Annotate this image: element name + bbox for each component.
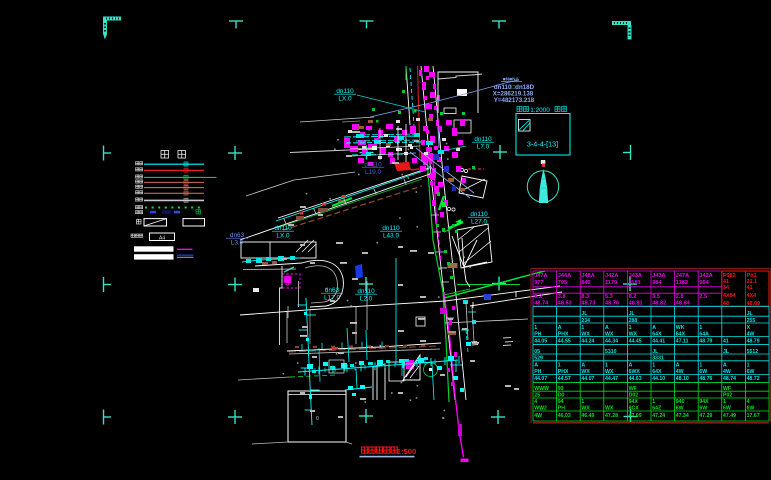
svg-text:48.76: 48.76 (605, 301, 619, 307)
svg-text:44.24: 44.24 (581, 338, 594, 344)
svg-text:6W: 6W (699, 369, 707, 375)
svg-text:2.5: 2.5 (699, 294, 707, 300)
svg-text:1181: 1181 (629, 280, 641, 286)
svg-text:LX.0: LX.0 (276, 233, 290, 240)
svg-text:5.3: 5.3 (605, 294, 613, 300)
svg-text:44.07: 44.07 (534, 376, 547, 382)
svg-text:48.81: 48.81 (629, 301, 643, 307)
svg-text:WX: WX (605, 331, 614, 337)
svg-text:1: 1 (581, 325, 584, 331)
svg-text:JL: JL (652, 349, 659, 355)
svg-text:L3.0: L3.0 (231, 240, 244, 247)
svg-text:44.63: 44.63 (629, 376, 642, 382)
svg-text:A4: A4 (159, 235, 165, 241)
svg-text:48.84: 48.84 (676, 301, 691, 307)
svg-text:A: A (534, 362, 538, 368)
svg-text:34: 34 (723, 285, 729, 291)
svg-text:WF: WF (629, 386, 637, 392)
svg-text:44.07: 44.07 (581, 376, 594, 382)
svg-text:48.63: 48.63 (558, 301, 572, 307)
svg-text:6CX: 6CX (629, 406, 640, 412)
svg-text:P02: P02 (723, 392, 732, 398)
svg-text:44.41: 44.41 (652, 338, 665, 344)
svg-text:1: 1 (652, 362, 655, 368)
svg-text:48.74: 48.74 (723, 376, 736, 382)
svg-text:JL: JL (629, 311, 636, 317)
svg-text:X: X (747, 325, 751, 331)
svg-text:JL: JL (581, 311, 588, 317)
svg-text:842: 842 (581, 280, 590, 286)
svg-text:1: 1 (629, 325, 632, 331)
svg-text:1: 1 (723, 399, 726, 405)
svg-text:WW2: WW2 (534, 406, 547, 412)
svg-text:48.73: 48.73 (581, 301, 595, 307)
svg-text:44.47: 44.47 (605, 376, 618, 382)
svg-text:3-4-4-[13]: 3-4-4-[13] (527, 140, 558, 149)
svg-text:94X: 94X (629, 399, 639, 405)
svg-text:3.5: 3.5 (652, 294, 660, 300)
svg-text:25: 25 (534, 392, 540, 398)
svg-text:L27.0: L27.0 (471, 219, 487, 226)
svg-text:J42A: J42A (605, 273, 618, 279)
svg-text:3.8: 3.8 (558, 294, 566, 300)
svg-text:94: 94 (558, 399, 564, 405)
svg-text:44.55: 44.55 (558, 338, 571, 344)
svg-text:4W: 4W (747, 331, 755, 337)
svg-text:WX: WX (605, 406, 614, 412)
svg-text:46.49: 46.49 (581, 413, 594, 419)
svg-text:4W: 4W (723, 369, 731, 375)
svg-text:1182: 1182 (676, 280, 688, 286)
svg-text:64X: 64X (676, 331, 686, 337)
svg-text:5.2: 5.2 (534, 294, 542, 300)
svg-text:1179: 1179 (605, 280, 617, 286)
svg-text:44.34: 44.34 (605, 338, 618, 344)
svg-text:48.79: 48.79 (699, 338, 712, 344)
svg-text:JL: JL (723, 349, 730, 355)
svg-text:1: 1 (534, 325, 537, 331)
svg-text:D02: D02 (629, 392, 639, 398)
svg-text:48.72: 48.72 (747, 376, 760, 382)
svg-text:4W: 4W (676, 369, 684, 375)
svg-text:48.79: 48.79 (747, 338, 760, 344)
svg-text:47.24: 47.24 (652, 413, 665, 419)
svg-text:17.67: 17.67 (747, 413, 760, 419)
svg-text:L43.0: L43.0 (383, 233, 399, 240)
svg-text:J43A: J43A (629, 273, 642, 279)
svg-text:1: 1 (747, 362, 750, 368)
svg-text:A: A (629, 362, 633, 368)
svg-text:WX: WX (581, 331, 590, 337)
svg-text:234: 234 (581, 318, 590, 324)
svg-text:47.34: 47.34 (676, 413, 689, 419)
svg-text:D0: D0 (558, 392, 565, 398)
svg-text:WK: WK (676, 325, 685, 331)
svg-text:4W: 4W (534, 413, 542, 419)
svg-text:64X: 64X (652, 331, 662, 337)
svg-text:48.74: 48.74 (534, 301, 549, 307)
svg-text:1: 1 (699, 325, 702, 331)
svg-text:47.29: 47.29 (699, 413, 712, 419)
svg-text:46.03: 46.03 (558, 413, 571, 419)
svg-text:94X: 94X (699, 399, 709, 405)
svg-text:6W: 6W (747, 369, 755, 375)
svg-text:44.10: 44.10 (652, 376, 665, 382)
svg-text:L2.0: L2.0 (360, 296, 373, 303)
svg-text:5: 5 (285, 279, 290, 288)
svg-text:WX: WX (581, 369, 590, 375)
svg-text:41: 41 (723, 338, 729, 344)
svg-text:41: 41 (747, 285, 753, 291)
svg-text:6W: 6W (747, 406, 755, 412)
svg-text:WF: WF (723, 386, 731, 392)
svg-text:WX: WX (581, 406, 590, 412)
svg-text:99: 99 (558, 386, 564, 392)
svg-text:8.3: 8.3 (581, 294, 589, 300)
svg-text:PH: PH (534, 331, 541, 337)
svg-text:1: 1 (558, 362, 561, 368)
svg-text:48.76: 48.76 (699, 376, 712, 382)
svg-text:64A: 64A (699, 331, 709, 337)
svg-text:4X84: 4X84 (723, 293, 736, 299)
svg-text:Y=482173.218: Y=482173.218 (494, 97, 535, 104)
svg-text:48.10: 48.10 (676, 376, 689, 382)
svg-text:1:2000: 1:2000 (530, 107, 550, 114)
svg-text:PH: PH (558, 406, 565, 412)
svg-text:4X4: 4X4 (747, 293, 757, 299)
svg-text:4: 4 (747, 399, 750, 405)
svg-text:47.49: 47.49 (723, 413, 736, 419)
svg-text:47.28: 47.28 (605, 413, 618, 419)
svg-text:WX: WX (605, 369, 614, 375)
svg-text:795: 795 (558, 280, 567, 286)
svg-text:2.8: 2.8 (676, 294, 684, 300)
svg-text:47.09: 47.09 (629, 413, 642, 419)
svg-text:1: 1 (699, 362, 702, 368)
svg-text:6WX: 6WX (629, 369, 641, 375)
svg-text:1: 1 (605, 362, 608, 368)
svg-text:6W: 6W (699, 406, 707, 412)
svg-text:A: A (723, 362, 727, 368)
svg-text:5310: 5310 (605, 349, 617, 355)
svg-text:CM: CM (447, 268, 453, 273)
svg-text:64Z: 64Z (652, 406, 662, 412)
svg-text:44.45: 44.45 (629, 338, 642, 344)
svg-text:5512: 5512 (747, 349, 759, 355)
svg-text:44.57: 44.57 (558, 376, 571, 382)
svg-text:288: 288 (629, 318, 638, 324)
svg-text:6W: 6W (723, 406, 731, 412)
svg-text:J47A: J47A (676, 273, 689, 279)
svg-text:1:500: 1:500 (397, 447, 416, 456)
svg-text:A: A (605, 325, 609, 331)
svg-text:A: A (652, 325, 656, 331)
svg-text:WWW: WWW (534, 386, 549, 392)
svg-text:3331: 3331 (652, 356, 664, 362)
svg-text:984: 984 (699, 280, 709, 286)
svg-text:PH: PH (534, 369, 541, 375)
svg-text:05: 05 (534, 349, 540, 355)
svg-text:A: A (676, 362, 680, 368)
svg-text:984: 984 (652, 280, 662, 286)
svg-text:44.05: 44.05 (534, 338, 547, 344)
svg-text:0: 0 (316, 416, 319, 422)
svg-text:1: 1 (652, 399, 655, 405)
svg-text:529: 529 (534, 356, 543, 362)
svg-text:A: A (581, 362, 585, 368)
svg-text:977: 977 (534, 280, 543, 286)
svg-text:PHX: PHX (558, 369, 569, 375)
svg-text:48.82: 48.82 (652, 301, 666, 307)
svg-text:47.11: 47.11 (676, 338, 689, 344)
svg-text:255: 255 (747, 318, 756, 324)
svg-text:J44A: J44A (558, 273, 571, 279)
svg-text:1: 1 (581, 399, 584, 405)
svg-text:940: 940 (676, 399, 685, 405)
svg-text:64X: 64X (652, 369, 662, 375)
svg-text:J48A: J48A (581, 273, 594, 279)
svg-text:LX.0: LX.0 (338, 96, 352, 103)
svg-text:J47A: J47A (534, 273, 547, 279)
svg-text:L7.0: L7.0 (477, 144, 490, 151)
svg-text:WX: WX (629, 331, 638, 337)
svg-text:JL: JL (747, 311, 754, 317)
svg-text:6W: 6W (676, 406, 684, 412)
svg-text:A: A (558, 325, 562, 331)
svg-text:J42A: J42A (699, 273, 712, 279)
svg-text:4: 4 (534, 399, 537, 405)
svg-text:J43A: J43A (652, 273, 665, 279)
svg-text:PHX: PHX (558, 331, 569, 337)
svg-text:8.2: 8.2 (629, 294, 637, 300)
svg-text:L19.0: L19.0 (365, 169, 381, 176)
